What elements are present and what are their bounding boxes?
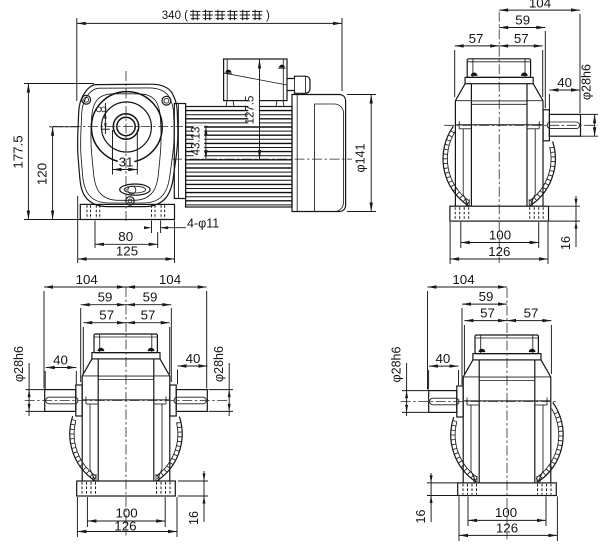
svg-text:40: 40 [53, 353, 68, 368]
svg-text:): ) [266, 10, 270, 22]
svg-text:φ28h6: φ28h6 [212, 346, 226, 382]
svg-text:340 (: 340 ( [162, 10, 188, 22]
svg-text:127.5: 127.5 [245, 96, 257, 125]
svg-text:100: 100 [489, 228, 511, 243]
svg-text:57: 57 [141, 308, 156, 323]
svg-text:43.13: 43.13 [190, 127, 202, 156]
svg-text:59: 59 [98, 290, 113, 305]
svg-text:125: 125 [116, 244, 138, 259]
svg-text:59: 59 [143, 290, 158, 305]
svg-text:59: 59 [479, 289, 494, 304]
svg-text:59: 59 [515, 12, 530, 27]
svg-text:φ28h6: φ28h6 [389, 346, 403, 382]
svg-text:40: 40 [557, 75, 572, 90]
svg-text:100: 100 [495, 505, 517, 520]
svg-text:80: 80 [118, 229, 133, 244]
svg-text:57: 57 [480, 305, 495, 320]
svg-text:57: 57 [99, 308, 114, 323]
svg-text:4-φ11: 4-φ11 [187, 217, 219, 231]
svg-text:126: 126 [114, 519, 136, 534]
svg-text:104: 104 [529, 0, 551, 10]
svg-text:16: 16 [559, 236, 573, 250]
svg-text:126: 126 [488, 244, 510, 259]
svg-text:16: 16 [187, 511, 201, 525]
svg-text:126: 126 [496, 520, 518, 535]
svg-text:57: 57 [469, 31, 484, 46]
svg-text:57: 57 [514, 31, 529, 46]
svg-text:177.5: 177.5 [11, 135, 26, 168]
svg-text:φ141: φ141 [354, 143, 368, 172]
svg-text:40: 40 [186, 351, 201, 366]
svg-text:104: 104 [76, 272, 98, 287]
svg-text:φ28h6: φ28h6 [12, 346, 26, 382]
svg-text:120: 120 [35, 163, 50, 185]
svg-text:57: 57 [524, 305, 539, 320]
svg-text:40: 40 [436, 351, 451, 366]
svg-text:16: 16 [414, 510, 428, 524]
svg-text:104: 104 [452, 272, 474, 287]
svg-text:104: 104 [159, 272, 181, 287]
svg-text:φ28h6: φ28h6 [580, 64, 594, 100]
